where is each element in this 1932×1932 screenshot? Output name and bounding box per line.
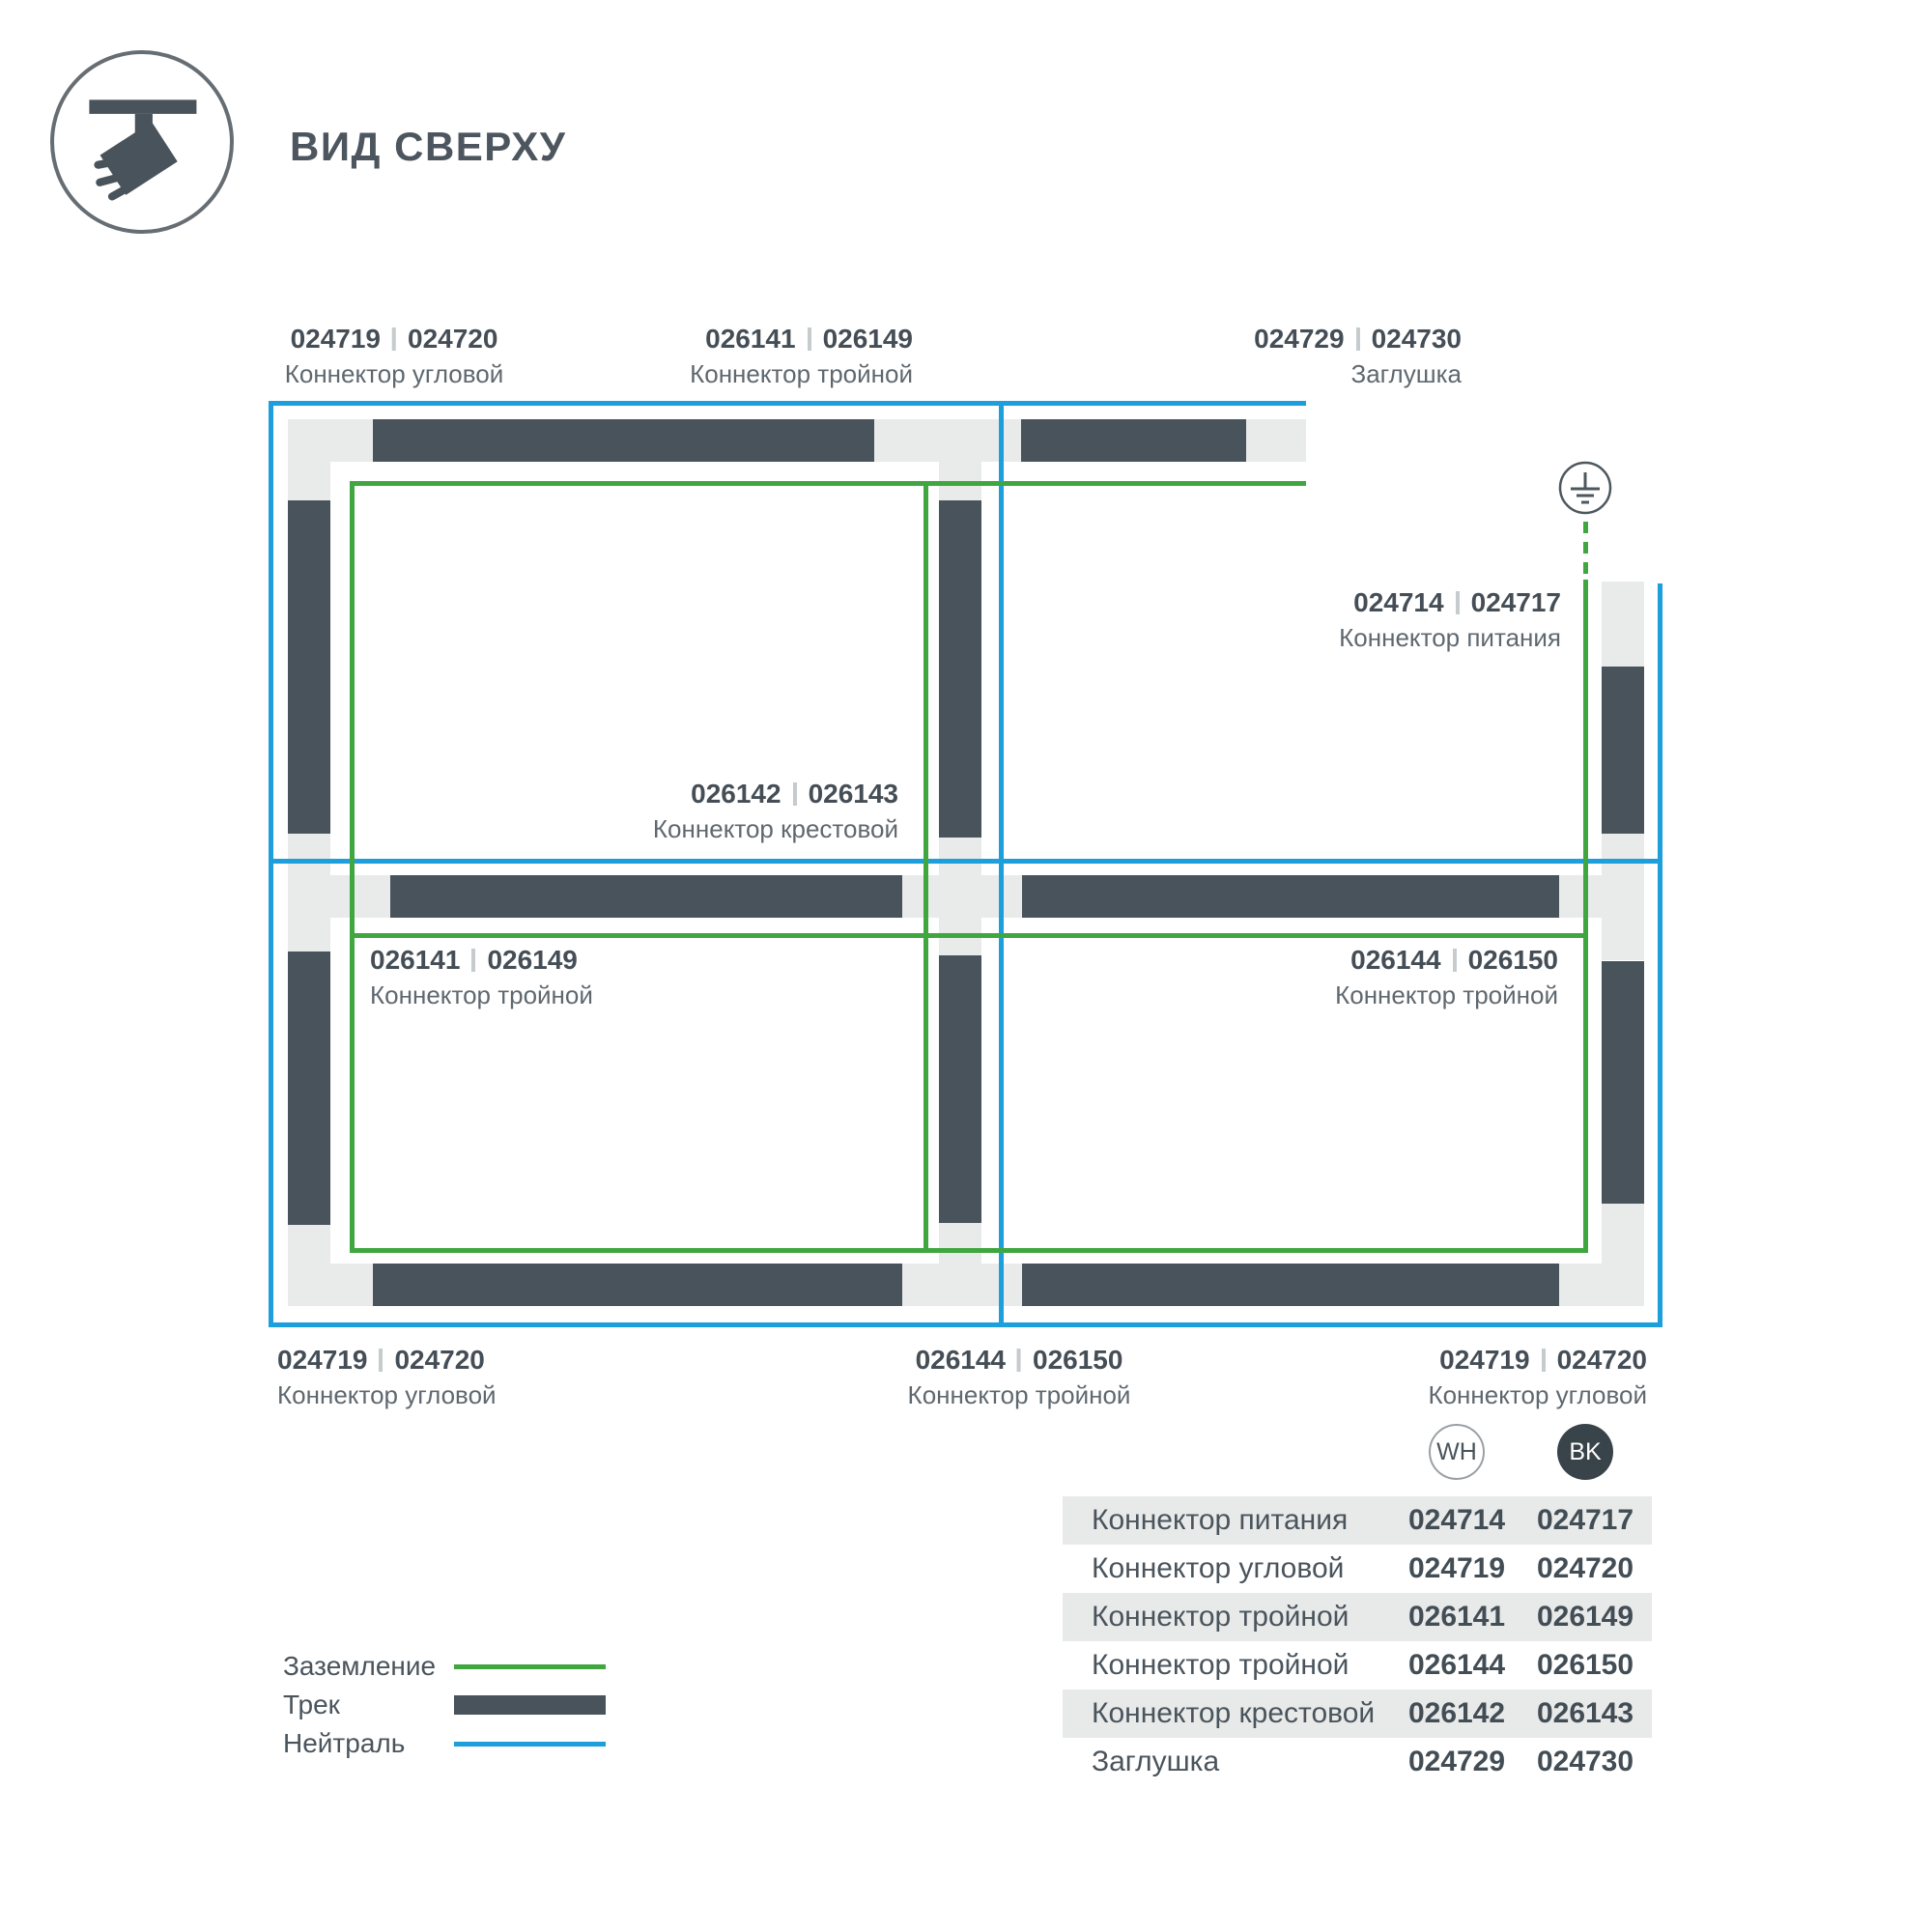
legend-label: Заземление xyxy=(283,1651,436,1682)
connector-block xyxy=(330,875,390,918)
divider xyxy=(1453,949,1457,972)
callout-corner-top-left: 024719024720 Коннектор угловой xyxy=(285,324,504,389)
ground-line xyxy=(923,481,928,1253)
legend-item-track: Трек xyxy=(283,1686,631,1724)
ground-line xyxy=(350,481,1306,486)
divider xyxy=(793,782,797,806)
connector-block xyxy=(288,834,330,952)
table-row: Коннектор тройной 026144 026150 xyxy=(1063,1641,1652,1690)
track-segment xyxy=(939,955,981,1223)
power-connector-block xyxy=(1602,582,1644,667)
track-segment xyxy=(1022,1264,1559,1306)
earth-ground-icon xyxy=(1556,459,1614,517)
callout-cross-center: 026142026143 Коннектор крестовой xyxy=(653,779,898,844)
track-segment xyxy=(373,1264,902,1306)
connector-block xyxy=(902,1264,1022,1306)
part-number-table: WH BK Коннектор питания 024714 024717 Ко… xyxy=(1063,1424,1652,1791)
ground-line xyxy=(350,481,355,1253)
legend-item-ground: Заземление xyxy=(283,1647,631,1686)
ground-line xyxy=(350,1248,1587,1253)
connector-block xyxy=(1602,834,1644,960)
table-row: Коннектор тройной 026141 026149 xyxy=(1063,1593,1652,1641)
legend-label: Нейтраль xyxy=(283,1728,405,1759)
divider xyxy=(471,949,475,972)
neutral-line xyxy=(269,401,1306,406)
callout-triple-bottom: 026144026150 Коннектор тройной xyxy=(908,1345,1131,1410)
track-segment xyxy=(288,952,330,1225)
divider xyxy=(1356,327,1360,351)
connector-block xyxy=(288,1264,373,1306)
divider xyxy=(1542,1349,1546,1372)
track-segment xyxy=(288,500,330,834)
ground-line xyxy=(350,933,1587,938)
track-segment xyxy=(1602,667,1644,834)
callout-endcap-top: 024729024730 Заглушка xyxy=(1254,324,1462,389)
divider xyxy=(1456,591,1460,614)
track-segment xyxy=(1602,961,1644,1204)
endcap-block xyxy=(1246,419,1306,462)
color-badge-black: BK xyxy=(1557,1424,1613,1480)
legend-item-neutral: Нейтраль xyxy=(283,1724,631,1763)
callout-corner-bottom-left: 024719024720 Коннектор угловой xyxy=(277,1345,497,1410)
connector-block xyxy=(288,419,330,500)
table-row: Заглушка 024729 024730 xyxy=(1063,1738,1652,1786)
color-badge-white: WH xyxy=(1429,1424,1485,1480)
connector-block xyxy=(902,875,1022,918)
callout-corner-bottom-right: 024719024720 Коннектор угловой xyxy=(1428,1345,1647,1410)
neutral-line xyxy=(999,401,1004,1327)
ground-line-dashed xyxy=(1583,522,1588,580)
neutral-line xyxy=(269,401,273,1327)
callout-triple-right-cell: 026144026150 Коннектор тройной xyxy=(1335,945,1558,1010)
callout-power-feed: 024714024717 Коннектор питания xyxy=(1339,587,1561,653)
divider xyxy=(808,327,811,351)
track-segment xyxy=(939,500,981,838)
neutral-line xyxy=(269,1322,1662,1327)
neutral-line xyxy=(1658,583,1662,1327)
track-segment xyxy=(1022,875,1559,918)
table-row: Коннектор питания 024714 024717 xyxy=(1063,1496,1652,1545)
connector-block xyxy=(1559,875,1602,918)
ground-line-swatch xyxy=(454,1664,606,1669)
track-segment xyxy=(373,419,874,462)
table-row: Коннектор угловой 024719 024720 xyxy=(1063,1545,1652,1593)
divider xyxy=(1017,1349,1021,1372)
track-swatch xyxy=(454,1695,606,1715)
callout-triple-left-cell: 026141026149 Коннектор тройной xyxy=(370,945,593,1010)
callout-triple-top: 026141026149 Коннектор тройной xyxy=(690,324,913,389)
connector-block xyxy=(1559,1264,1644,1306)
ground-line xyxy=(1583,580,1588,1253)
neutral-line-swatch xyxy=(454,1742,606,1747)
legend-label: Трек xyxy=(283,1690,340,1720)
table-row: Коннектор крестовой 026142 026143 xyxy=(1063,1690,1652,1738)
connector-block xyxy=(939,1223,981,1264)
page: ВИД СВЕРХУ xyxy=(0,0,1932,1932)
divider xyxy=(379,1349,383,1372)
neutral-line xyxy=(269,859,1662,864)
track-segment xyxy=(390,875,902,918)
track-segment xyxy=(1021,419,1246,462)
divider xyxy=(392,327,396,351)
